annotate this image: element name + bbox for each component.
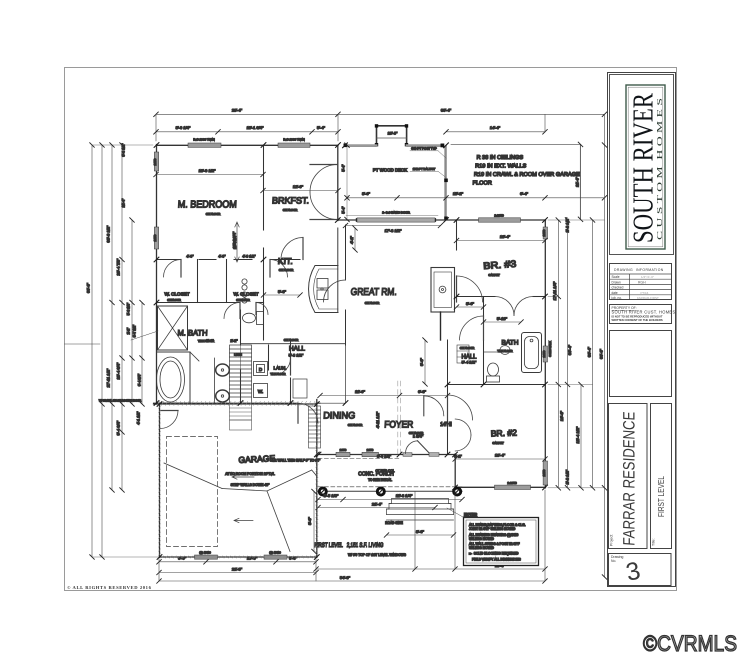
svg-text:FIELD VERIFY ALL DIMENSIONS: FIELD VERIFY ALL DIMENSIONS	[472, 557, 521, 561]
svg-text:8'-0 1/4": 8'-0 1/4"	[176, 125, 191, 130]
svg-text:W. CLOSET: W. CLOSET	[233, 292, 258, 297]
svg-text:27'-11 1/2": 27'-11 1/2"	[106, 368, 111, 387]
svg-text:ON FLOOR: ON FLOOR	[206, 212, 221, 216]
svg-text:W/ CRAWL SPACE ACCESS DOOR: W/ CRAWL SPACE ACCESS DOOR	[99, 399, 141, 403]
svg-text:ON FLOOR: ON FLOOR	[284, 338, 299, 342]
svg-text:R.O 2966 TWIN: R.O 2966 TWIN	[193, 138, 214, 142]
svg-text:JOIST #2 SYP UNLESS NOTED: JOIST #2 SYP UNLESS NOTED	[469, 527, 516, 531]
svg-text:(2) 2X10: (2) 2X10	[199, 551, 211, 555]
svg-text:8'-6": 8'-6"	[466, 301, 475, 306]
svg-text:ON FLOOR: ON FLOOR	[167, 298, 181, 302]
svg-text:30'-4": 30'-4"	[441, 108, 452, 113]
svg-text:21'-4": 21'-4"	[372, 501, 383, 506]
svg-text:9'-4 3/4": 9'-4 3/4"	[116, 420, 121, 435]
svg-text:2-2650: 2-2650	[507, 481, 517, 485]
svg-text:ATTIC ROOM PORTION 29' LVL: ATTIC ROOM PORTION 29' LVL	[225, 472, 275, 476]
svg-text:6'-0": 6'-0"	[418, 389, 427, 394]
svg-text:60'-0": 60'-0"	[599, 348, 604, 359]
svg-text:TILE FLOOR: TILE FLOOR	[198, 339, 214, 343]
svg-text:2650: 2650	[153, 158, 157, 165]
svg-text:2- 9x6 PATIO DOOR: 2- 9x6 PATIO DOOR	[382, 211, 410, 215]
svg-text:WRITTEN CONSENT OF THE BUILDER: WRITTEN CONSENT OF THE BUILDERS	[612, 318, 663, 322]
svg-text:22'-0": 22'-0"	[232, 566, 243, 571]
svg-text:ON FLOOR: ON FLOOR	[348, 423, 363, 427]
svg-text:36'-4": 36'-4"	[567, 344, 572, 355]
svg-text:6'-4": 6'-4"	[520, 191, 529, 196]
svg-text:date: date	[612, 291, 618, 295]
svg-text:16'-0": 16'-0"	[388, 132, 398, 136]
svg-text:ON FLOOR: ON FLOOR	[409, 431, 424, 435]
svg-text:STEP WALLS DOWN 46": STEP WALLS DOWN 46"	[231, 483, 270, 487]
svg-text:R19 IN CRAWL & ROOM OVER GARAG: R19 IN CRAWL & ROOM OVER GARAGE	[474, 172, 580, 178]
svg-text:UNLESS NOTED: UNLESS NOTED	[469, 537, 494, 541]
svg-text:IS NOT TO BE REPRODUCED WITHOU: IS NOT TO BE REPRODUCED WITHOUT	[612, 315, 663, 319]
svg-text:W.: W.	[258, 389, 263, 394]
svg-text:ON FLOOR: ON FLOOR	[460, 346, 475, 350]
svg-text:SOUTH RIVER CUST. HOMES: SOUTH RIVER CUST. HOMES	[612, 310, 676, 315]
svg-text:2650: 2650	[153, 234, 157, 241]
svg-text:BR. #2: BR. #2	[491, 428, 518, 439]
svg-text:2650: 2650	[367, 448, 374, 452]
svg-text:CARPET: CARPET	[492, 441, 504, 445]
svg-text:M. BATH: M. BATH	[177, 329, 208, 338]
svg-text:8'-0": 8'-0"	[416, 529, 425, 534]
svg-text:DINING: DINING	[323, 411, 356, 422]
svg-text:11'-4": 11'-4"	[575, 176, 580, 186]
svg-text:LINEN: LINEN	[234, 353, 242, 357]
svg-text:©CVRMLS: ©CVRMLS	[643, 631, 737, 656]
svg-text:11'-3 1/4": 11'-3 1/4"	[396, 493, 413, 498]
svg-text:CONC WALK: CONC WALK	[548, 341, 552, 357]
svg-text:GARAGE: GARAGE	[238, 453, 276, 465]
svg-text:PT WOOD DECK: PT WOOD DECK	[373, 168, 407, 173]
svg-text:ROAD SIDE: ROAD SIDE	[385, 521, 403, 525]
svg-text:TO REM DECAL: TO REM DECAL	[368, 478, 392, 482]
svg-text:54'-0": 54'-0"	[340, 575, 351, 580]
svg-text:ON FLOOR: ON FLOOR	[283, 208, 298, 212]
svg-text:8'-0 1/2": 8'-0 1/2"	[377, 455, 392, 459]
svg-text:FIRST LEVEL 2,151 S.F. LIVIN: FIRST LEVEL 2,151 S.F. LIVING	[314, 542, 383, 549]
svg-text:5'-2": 5'-2"	[454, 455, 462, 459]
svg-text:13'-4": 13'-4"	[500, 234, 511, 239]
svg-text:FIRST LEVEL: FIRST LEVEL	[657, 476, 666, 517]
svg-text:14'HI: 14'HI	[440, 422, 452, 428]
svg-text:13'-1 3/4": 13'-1 3/4"	[247, 125, 264, 130]
svg-text:5'-8 1/2": 5'-8 1/2"	[289, 353, 304, 358]
svg-text:RGH: RGH	[638, 281, 646, 285]
svg-text:2'-2": 2'-2"	[230, 339, 238, 343]
svg-text:13'-9 1/2": 13'-9 1/2"	[199, 168, 216, 173]
svg-text:9'-0": 9'-0"	[419, 357, 424, 366]
svg-text:KIT.: KIT.	[278, 256, 294, 266]
svg-text:4'-1 1/2": 4'-1 1/2"	[137, 411, 141, 425]
svg-text:2'-2 1/2": 2'-2 1/2"	[565, 469, 570, 484]
svg-text:16'-4 1/4": 16'-4 1/4"	[233, 234, 237, 249]
svg-text:R19 IN EXT. WALLS: R19 IN EXT. WALLS	[475, 164, 527, 170]
svg-text:5'-4": 5'-4"	[317, 125, 326, 130]
svg-text:6'-4 3/4": 6'-4 3/4"	[138, 373, 142, 386]
svg-text:CARPET: CARPET	[488, 273, 500, 277]
svg-text:2-2650: 2-2650	[494, 213, 504, 217]
svg-text:BRKFST.: BRKFST.	[272, 196, 310, 206]
svg-text:3'-7 1/2": 3'-7 1/2"	[133, 324, 137, 337]
svg-text:2650: 2650	[542, 469, 546, 476]
svg-text:2X2 PT BALUST: 2X2 PT BALUST	[413, 167, 436, 171]
svg-text:C U S T O M H O M E S: C U S T O M H O M E S	[655, 98, 664, 240]
svg-text:4'-2": 4'-2"	[349, 235, 354, 244]
svg-text:8'-5 1/8": 8'-5 1/8"	[324, 493, 339, 498]
svg-text:■- SOLID BLOCKING REQUIRED: ■- SOLID BLOCKING REQUIRED	[469, 552, 519, 556]
svg-text:13'-4": 13'-4"	[495, 453, 506, 458]
svg-text:Drawn: Drawn	[612, 280, 621, 284]
svg-text:Title:: Title:	[652, 538, 656, 546]
svg-text:R.O 2966 TWIN: R.O 2966 TWIN	[283, 138, 304, 142]
svg-text:R 38 IN CEILINGS: R 38 IN CEILINGS	[476, 155, 523, 161]
svg-text:© ALL RIGHTS RESERVED 2016: © ALL RIGHTS RESERVED 2016	[67, 585, 152, 590]
svg-text:36'-0 1/2": 36'-0 1/2"	[106, 225, 111, 242]
svg-text:2650: 2650	[542, 350, 546, 357]
svg-text:4'-11 1/2": 4'-11 1/2"	[375, 411, 380, 428]
svg-text:FARRAR-FIRST: FARRAR-FIRST	[637, 296, 659, 300]
svg-text:17'-8 1/2": 17'-8 1/2"	[385, 228, 402, 233]
svg-text:2'-2 1/2": 2'-2 1/2"	[565, 217, 570, 232]
svg-text:2650: 2650	[542, 229, 546, 236]
svg-text:2650: 2650	[340, 448, 347, 452]
svg-text:1/4"=1'-0": 1/4"=1'-0"	[641, 275, 654, 279]
svg-text:17'-11 1/4": 17'-11 1/4"	[552, 281, 557, 300]
svg-text:4'-9 1/2": 4'-9 1/2"	[242, 254, 256, 258]
svg-text:14'-4": 14'-4"	[490, 125, 501, 130]
svg-text:ON FLOOR: ON FLOOR	[236, 298, 250, 302]
svg-text:5'-4": 5'-4"	[342, 206, 346, 214]
svg-text:ON FLOOR: ON FLOOR	[279, 268, 294, 272]
svg-text:5'-0": 5'-0"	[278, 289, 287, 294]
svg-text:2'-2": 2'-2"	[127, 327, 131, 335]
svg-text:10'-4 3/4": 10'-4 3/4"	[116, 362, 121, 379]
svg-text:4'-0": 4'-0"	[186, 254, 194, 258]
svg-text:NOTES: NOTES	[464, 513, 478, 517]
svg-text:5'-4": 5'-4"	[342, 164, 346, 172]
svg-text:8'-6": 8'-6"	[362, 191, 371, 196]
svg-text:CONC. PORCH: CONC. PORCH	[358, 472, 394, 478]
svg-text:BATH: BATH	[502, 340, 519, 347]
svg-text:8'-8 1/2": 8'-8 1/2"	[122, 143, 126, 157]
svg-text:7/7/16: 7/7/16	[640, 291, 649, 295]
svg-text:4'-0": 4'-0"	[218, 254, 226, 258]
svg-text:DRAWING INFORMATION: DRAWING INFORMATION	[614, 268, 664, 272]
svg-text:M. BEDROOM: M. BEDROOM	[177, 200, 237, 211]
svg-text:ON FLOOR: ON FLOOR	[365, 301, 380, 305]
svg-text:FARRAR RESIDENCE: FARRAR RESIDENCE	[620, 411, 639, 546]
svg-text:Scale: Scale	[612, 275, 620, 279]
svg-text:No.: No.	[611, 559, 616, 563]
svg-text:LAUN.: LAUN.	[274, 366, 287, 371]
svg-text:16'-8": 16'-8"	[559, 410, 564, 421]
svg-text:job. no.: job. no.	[611, 296, 623, 300]
svg-text:5'-3 1/8": 5'-3 1/8"	[127, 302, 131, 315]
svg-text:W. CLOSET: W. CLOSET	[164, 292, 189, 297]
svg-text:Project:: Project:	[610, 534, 614, 546]
svg-text:FOYER: FOYER	[384, 420, 414, 431]
svg-text:1/2 WALL THIS HALF 9" TO 36": 1/2 WALL THIS HALF 9" TO 36"	[272, 459, 321, 463]
svg-text:TILE FLOOR: TILE FLOOR	[270, 372, 285, 376]
svg-text:36'-4": 36'-4"	[587, 346, 592, 357]
svg-text:HALL: HALL	[289, 346, 305, 353]
svg-text:(2) 2X10: (2) 2X10	[269, 551, 281, 555]
svg-text:checked: checked	[612, 286, 624, 290]
svg-text:11'-6": 11'-6"	[355, 389, 365, 394]
svg-text:UNLESS NOTED: UNLESS NOTED	[469, 546, 494, 550]
svg-text:6X6 PT POST TYP: 6X6 PT POST TYP	[411, 147, 437, 151]
svg-text:11'-4": 11'-4"	[122, 198, 126, 208]
svg-text:TILE FLOOR: TILE FLOOR	[497, 349, 512, 353]
svg-text:12'-6": 12'-6"	[293, 184, 304, 189]
svg-text:15'-0": 15'-0"	[247, 556, 258, 561]
svg-text:W/ 9'0 TOP OF 1ST LEVEL WINDOW: W/ 9'0 TOP OF 1ST LEVEL WINDOWS	[348, 553, 407, 557]
svg-text:GREAT RM.: GREAT RM.	[350, 287, 397, 298]
svg-text:12'-4 1/2": 12'-4 1/2"	[575, 426, 580, 443]
svg-text:5'-10": 5'-10"	[497, 316, 508, 321]
svg-text:20'-4 7/8": 20'-4 7/8"	[116, 258, 121, 275]
svg-text:FLOOR: FLOOR	[472, 181, 491, 187]
svg-text:15'-2": 15'-2"	[453, 191, 464, 196]
svg-text:HALL: HALL	[462, 355, 478, 361]
svg-text:8'-0": 8'-0"	[307, 516, 312, 525]
svg-text:28'-4": 28'-4"	[232, 108, 243, 113]
svg-text:BR. #3: BR. #3	[483, 259, 517, 272]
svg-text:60'-0": 60'-0"	[86, 282, 91, 293]
